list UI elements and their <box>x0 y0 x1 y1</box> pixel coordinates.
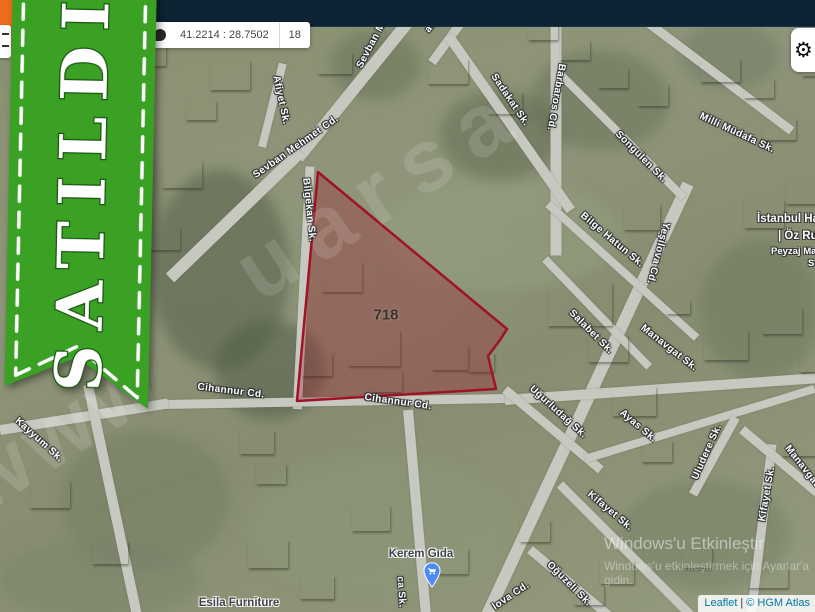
top-navigation-bar <box>0 0 815 27</box>
building <box>322 262 362 292</box>
building <box>600 560 634 584</box>
building <box>240 430 274 454</box>
corner-logo <box>0 0 13 28</box>
building <box>786 180 815 204</box>
building <box>700 58 740 82</box>
building <box>638 84 668 106</box>
building <box>762 308 802 334</box>
building <box>372 370 402 392</box>
attribution-separator: | <box>740 597 743 609</box>
building <box>8 348 38 368</box>
building <box>642 440 672 462</box>
building <box>428 58 468 84</box>
poi-label-oz-rulo: | Öz Rulo <box>778 230 815 242</box>
poi-label-kerem-gida: Kerem Gıda <box>389 548 454 560</box>
building <box>148 228 180 250</box>
building <box>210 60 250 90</box>
building <box>302 352 332 376</box>
provider-link[interactable]: © HGM Atlas <box>746 597 810 609</box>
building <box>186 100 216 120</box>
parcel-number-label: 718 <box>373 307 398 324</box>
poi-label-istanbul-hazin: İstanbul Hazin <box>757 213 815 225</box>
satellite-map[interactable] <box>0 0 815 612</box>
building <box>256 464 286 484</box>
building <box>704 330 748 360</box>
building <box>682 546 712 568</box>
road <box>162 394 507 409</box>
building <box>598 68 628 88</box>
zoom-level-value: 18 <box>280 29 310 41</box>
building <box>612 386 656 416</box>
building <box>352 505 390 531</box>
gear-icon: ⚙ <box>794 38 813 62</box>
building <box>748 560 788 588</box>
building <box>432 344 468 370</box>
building <box>300 575 334 599</box>
map-app-window: 718 Windows'u Etkinleştir Windows'u etki… <box>0 0 815 612</box>
poi-label-s-partial: S <box>808 258 814 269</box>
map-attribution: Leaflet|© HGM Atlas <box>698 595 815 612</box>
terrain-patch <box>30 90 160 310</box>
shop-pin-icon[interactable] <box>423 562 441 588</box>
building <box>162 160 202 188</box>
pan-icon <box>154 29 166 41</box>
building <box>318 52 352 74</box>
building <box>762 118 796 140</box>
building <box>666 300 690 314</box>
coordinate-display: 41.2214 : 28.7502 18 <box>148 22 310 48</box>
poi-label-peyzaj-malze: Peyzaj Malze <box>771 246 815 257</box>
building <box>92 540 128 564</box>
poi-label-esila-furniture: Esila Furniture <box>199 597 280 609</box>
building <box>348 330 400 366</box>
building <box>248 540 288 568</box>
building <box>560 40 590 60</box>
leaflet-link[interactable]: Leaflet <box>704 597 737 609</box>
building <box>30 480 70 508</box>
coordinates-value: 41.2214 : 28.7502 <box>170 29 279 41</box>
building <box>468 352 494 372</box>
settings-button[interactable]: ⚙ <box>791 28 815 72</box>
building <box>520 520 550 542</box>
building <box>624 204 660 230</box>
street-label-ca-sk: ca Sk. <box>394 576 407 608</box>
map-zoom-control[interactable] <box>0 25 11 58</box>
building <box>744 78 774 98</box>
building <box>800 350 815 372</box>
